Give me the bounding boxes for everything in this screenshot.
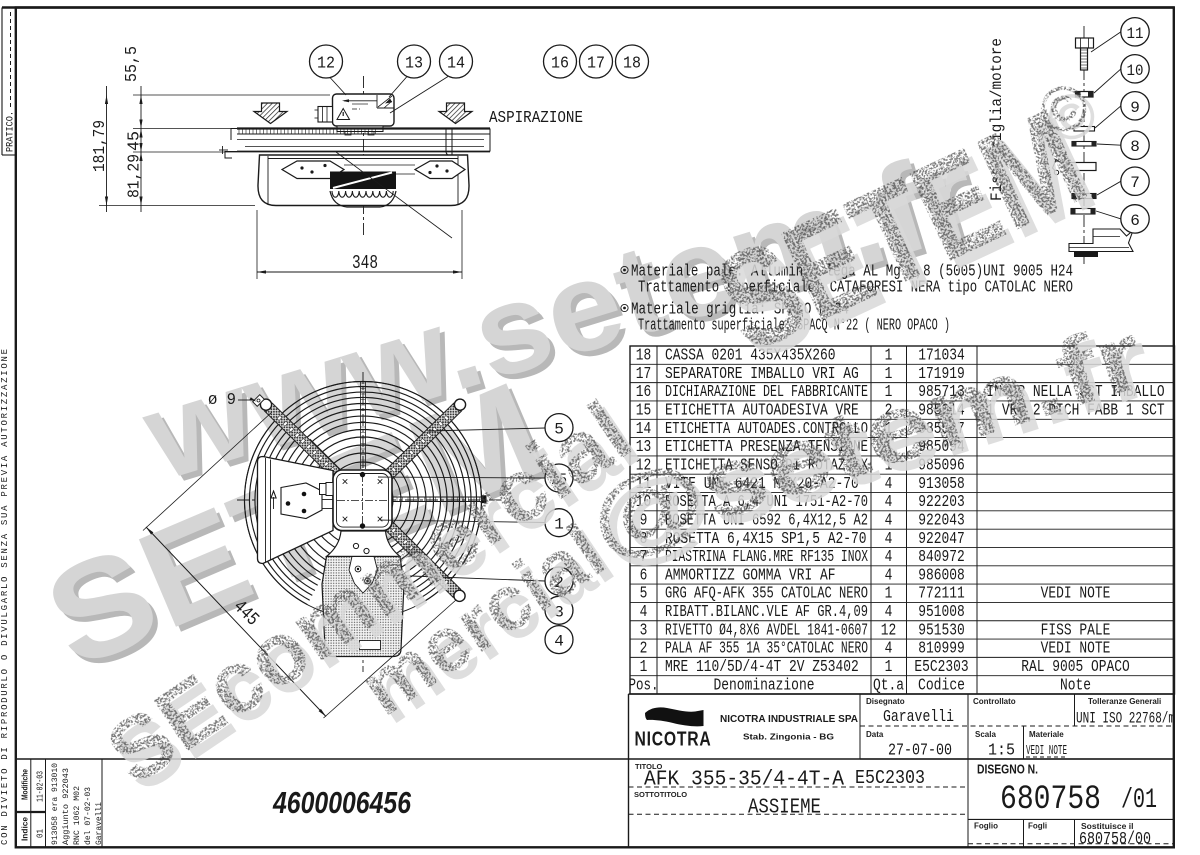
svg-text:922047: 922047 bbox=[918, 529, 965, 548]
svg-text:11: 11 bbox=[1127, 25, 1144, 43]
svg-text:1: 1 bbox=[885, 584, 893, 603]
svg-text:13: 13 bbox=[405, 55, 423, 74]
svg-text:RIBATT.BILANC.VLE AF GR.4,09: RIBATT.BILANC.VLE AF GR.4,09 bbox=[665, 602, 868, 621]
svg-text:4: 4 bbox=[885, 602, 893, 621]
svg-text:913058 era 913010: 913058 era 913010 bbox=[51, 763, 60, 845]
svg-text:Scala: Scala bbox=[975, 730, 996, 739]
svg-text:ASSIEME: ASSIEME bbox=[748, 796, 821, 820]
svg-text:17: 17 bbox=[587, 55, 605, 74]
svg-text:18: 18 bbox=[623, 55, 641, 74]
svg-text:Garavelli: Garavelli bbox=[883, 708, 954, 727]
svg-text:17: 17 bbox=[636, 364, 652, 383]
svg-text:81,29: 81,29 bbox=[126, 154, 145, 198]
svg-text:1: 1 bbox=[640, 657, 648, 676]
svg-text:2: 2 bbox=[640, 639, 648, 658]
svg-text:16: 16 bbox=[636, 382, 652, 401]
svg-text:Controllato: Controllato bbox=[973, 697, 1016, 706]
svg-text:Denominazione: Denominazione bbox=[714, 675, 815, 694]
svg-text:6: 6 bbox=[1130, 212, 1140, 230]
svg-text:14: 14 bbox=[447, 55, 465, 74]
svg-text:NICOTRA: NICOTRA bbox=[635, 728, 712, 751]
svg-text:772111: 772111 bbox=[918, 584, 965, 603]
svg-text:RIVETTO Ø4,8X6 AVDEL 1841-0607: RIVETTO Ø4,8X6 AVDEL 1841-0607 bbox=[665, 620, 868, 639]
svg-text:AMMORTIZZ GOMMA VRI AF: AMMORTIZZ GOMMA VRI AF bbox=[665, 565, 836, 584]
svg-text:PRATICO.: PRATICO. bbox=[4, 111, 16, 152]
svg-text:4: 4 bbox=[885, 565, 893, 584]
svg-text:Data: Data bbox=[866, 730, 884, 739]
svg-text:986008: 986008 bbox=[918, 565, 965, 584]
svg-text:18: 18 bbox=[636, 346, 652, 365]
svg-text:Materiale: Materiale bbox=[1029, 730, 1064, 739]
svg-text:ASPIRAZIONE: ASPIRAZIONE bbox=[489, 109, 583, 128]
svg-text:Stab. Zingonia - BG: Stab. Zingonia - BG bbox=[743, 732, 834, 742]
svg-text:840972: 840972 bbox=[918, 547, 965, 566]
svg-text:1: 1 bbox=[885, 657, 893, 676]
svg-text:4: 4 bbox=[885, 547, 893, 566]
svg-text:E5C2303: E5C2303 bbox=[855, 767, 925, 789]
svg-text:VEDI NOTE: VEDI NOTE bbox=[1041, 584, 1111, 603]
svg-text:12: 12 bbox=[881, 620, 897, 639]
svg-text:4: 4 bbox=[885, 510, 893, 529]
svg-text:27-07-00: 27-07-00 bbox=[888, 742, 952, 761]
svg-text:AFK 355-35/4-4T-A: AFK 355-35/4-4T-A bbox=[644, 768, 844, 792]
svg-text:DISEGNO N.: DISEGNO N. bbox=[977, 763, 1038, 777]
svg-text:VEDI NOTE: VEDI NOTE bbox=[1026, 744, 1067, 759]
svg-text:951008: 951008 bbox=[918, 602, 965, 621]
svg-text:922043: 922043 bbox=[918, 510, 965, 529]
svg-text:Tolleranze Generali: Tolleranze Generali bbox=[1088, 697, 1161, 706]
svg-text:/01: /01 bbox=[1121, 785, 1157, 816]
svg-text:1: 1 bbox=[885, 346, 893, 365]
svg-text:01: 01 bbox=[36, 829, 46, 838]
svg-text:680758/00: 680758/00 bbox=[1079, 830, 1151, 850]
svg-text:15: 15 bbox=[636, 401, 652, 420]
svg-text:680758: 680758 bbox=[1000, 781, 1101, 819]
svg-text:8: 8 bbox=[1130, 138, 1140, 156]
svg-text:14: 14 bbox=[636, 419, 652, 438]
svg-text:Codice: Codice bbox=[918, 675, 965, 694]
svg-text:922203: 922203 bbox=[918, 492, 965, 511]
svg-text:Modifiche: Modifiche bbox=[20, 769, 30, 800]
svg-text:1:5: 1:5 bbox=[988, 742, 1015, 761]
svg-text:Pos.: Pos. bbox=[629, 675, 659, 694]
svg-text:ø 9: ø 9 bbox=[208, 391, 236, 410]
svg-text:16: 16 bbox=[551, 55, 569, 74]
svg-text:VEDI NOTE: VEDI NOTE bbox=[1041, 639, 1111, 658]
svg-text:FISS PALE: FISS PALE bbox=[1041, 620, 1111, 639]
svg-text:4: 4 bbox=[640, 602, 648, 621]
svg-text:7: 7 bbox=[1130, 174, 1140, 192]
svg-text:4600006456: 4600006456 bbox=[272, 785, 411, 820]
svg-text:MRE 110/5D/4-4T 2V Z53402: MRE 110/5D/4-4T 2V Z53402 bbox=[665, 657, 859, 676]
svg-text:3: 3 bbox=[640, 620, 648, 639]
svg-text:CON DIVIETO DI RIPRODURLO O DI: CON DIVIETO DI RIPRODURLO O DIVULGARLO S… bbox=[0, 349, 10, 845]
svg-text:Disegnato: Disegnato bbox=[866, 697, 905, 706]
svg-text:Fogli: Fogli bbox=[1028, 822, 1047, 831]
svg-text:Foglio: Foglio bbox=[974, 822, 998, 831]
svg-text:9: 9 bbox=[1130, 99, 1140, 117]
svg-text:RNC 1062 M02: RNC 1062 M02 bbox=[73, 786, 82, 845]
svg-text:810999: 810999 bbox=[918, 639, 965, 658]
svg-text:55,5: 55,5 bbox=[123, 46, 142, 82]
svg-text:NICOTRA INDUSTRIALE SPA: NICOTRA INDUSTRIALE SPA bbox=[720, 714, 858, 725]
svg-text:11-02-03: 11-02-03 bbox=[36, 771, 46, 802]
svg-text:GRG AFQ-AFK 355 CATOLAC NERO: GRG AFQ-AFK 355 CATOLAC NERO bbox=[665, 584, 868, 603]
svg-text:Qt.a: Qt.a bbox=[873, 675, 904, 694]
svg-text:4: 4 bbox=[885, 639, 893, 658]
svg-text:RAL 9005 OPACO: RAL 9005 OPACO bbox=[1021, 657, 1130, 676]
svg-text:UNI ISO 22768/m: UNI ISO 22768/m bbox=[1076, 710, 1175, 728]
svg-text:Garavelli: Garavelli bbox=[94, 802, 104, 845]
svg-text:E5C2303: E5C2303 bbox=[914, 657, 968, 676]
svg-text:951530: 951530 bbox=[918, 620, 965, 639]
svg-text:181,79: 181,79 bbox=[91, 120, 110, 172]
svg-text:Indice: Indice bbox=[20, 817, 30, 841]
svg-text:10: 10 bbox=[1127, 62, 1144, 80]
svg-text:del 07-02-03: del 07-02-03 bbox=[83, 787, 93, 845]
svg-text:Aggiunto 922043: Aggiunto 922043 bbox=[61, 768, 71, 845]
svg-text:348: 348 bbox=[352, 252, 378, 274]
svg-text:5: 5 bbox=[640, 584, 648, 603]
svg-text:PALA AF 355 1A 35°CATOLAC NERO: PALA AF 355 1A 35°CATOLAC NERO bbox=[665, 639, 868, 658]
svg-text:12: 12 bbox=[317, 55, 335, 74]
svg-text:Note: Note bbox=[1060, 675, 1091, 694]
svg-text:45: 45 bbox=[126, 131, 145, 151]
svg-text:4: 4 bbox=[885, 529, 893, 548]
